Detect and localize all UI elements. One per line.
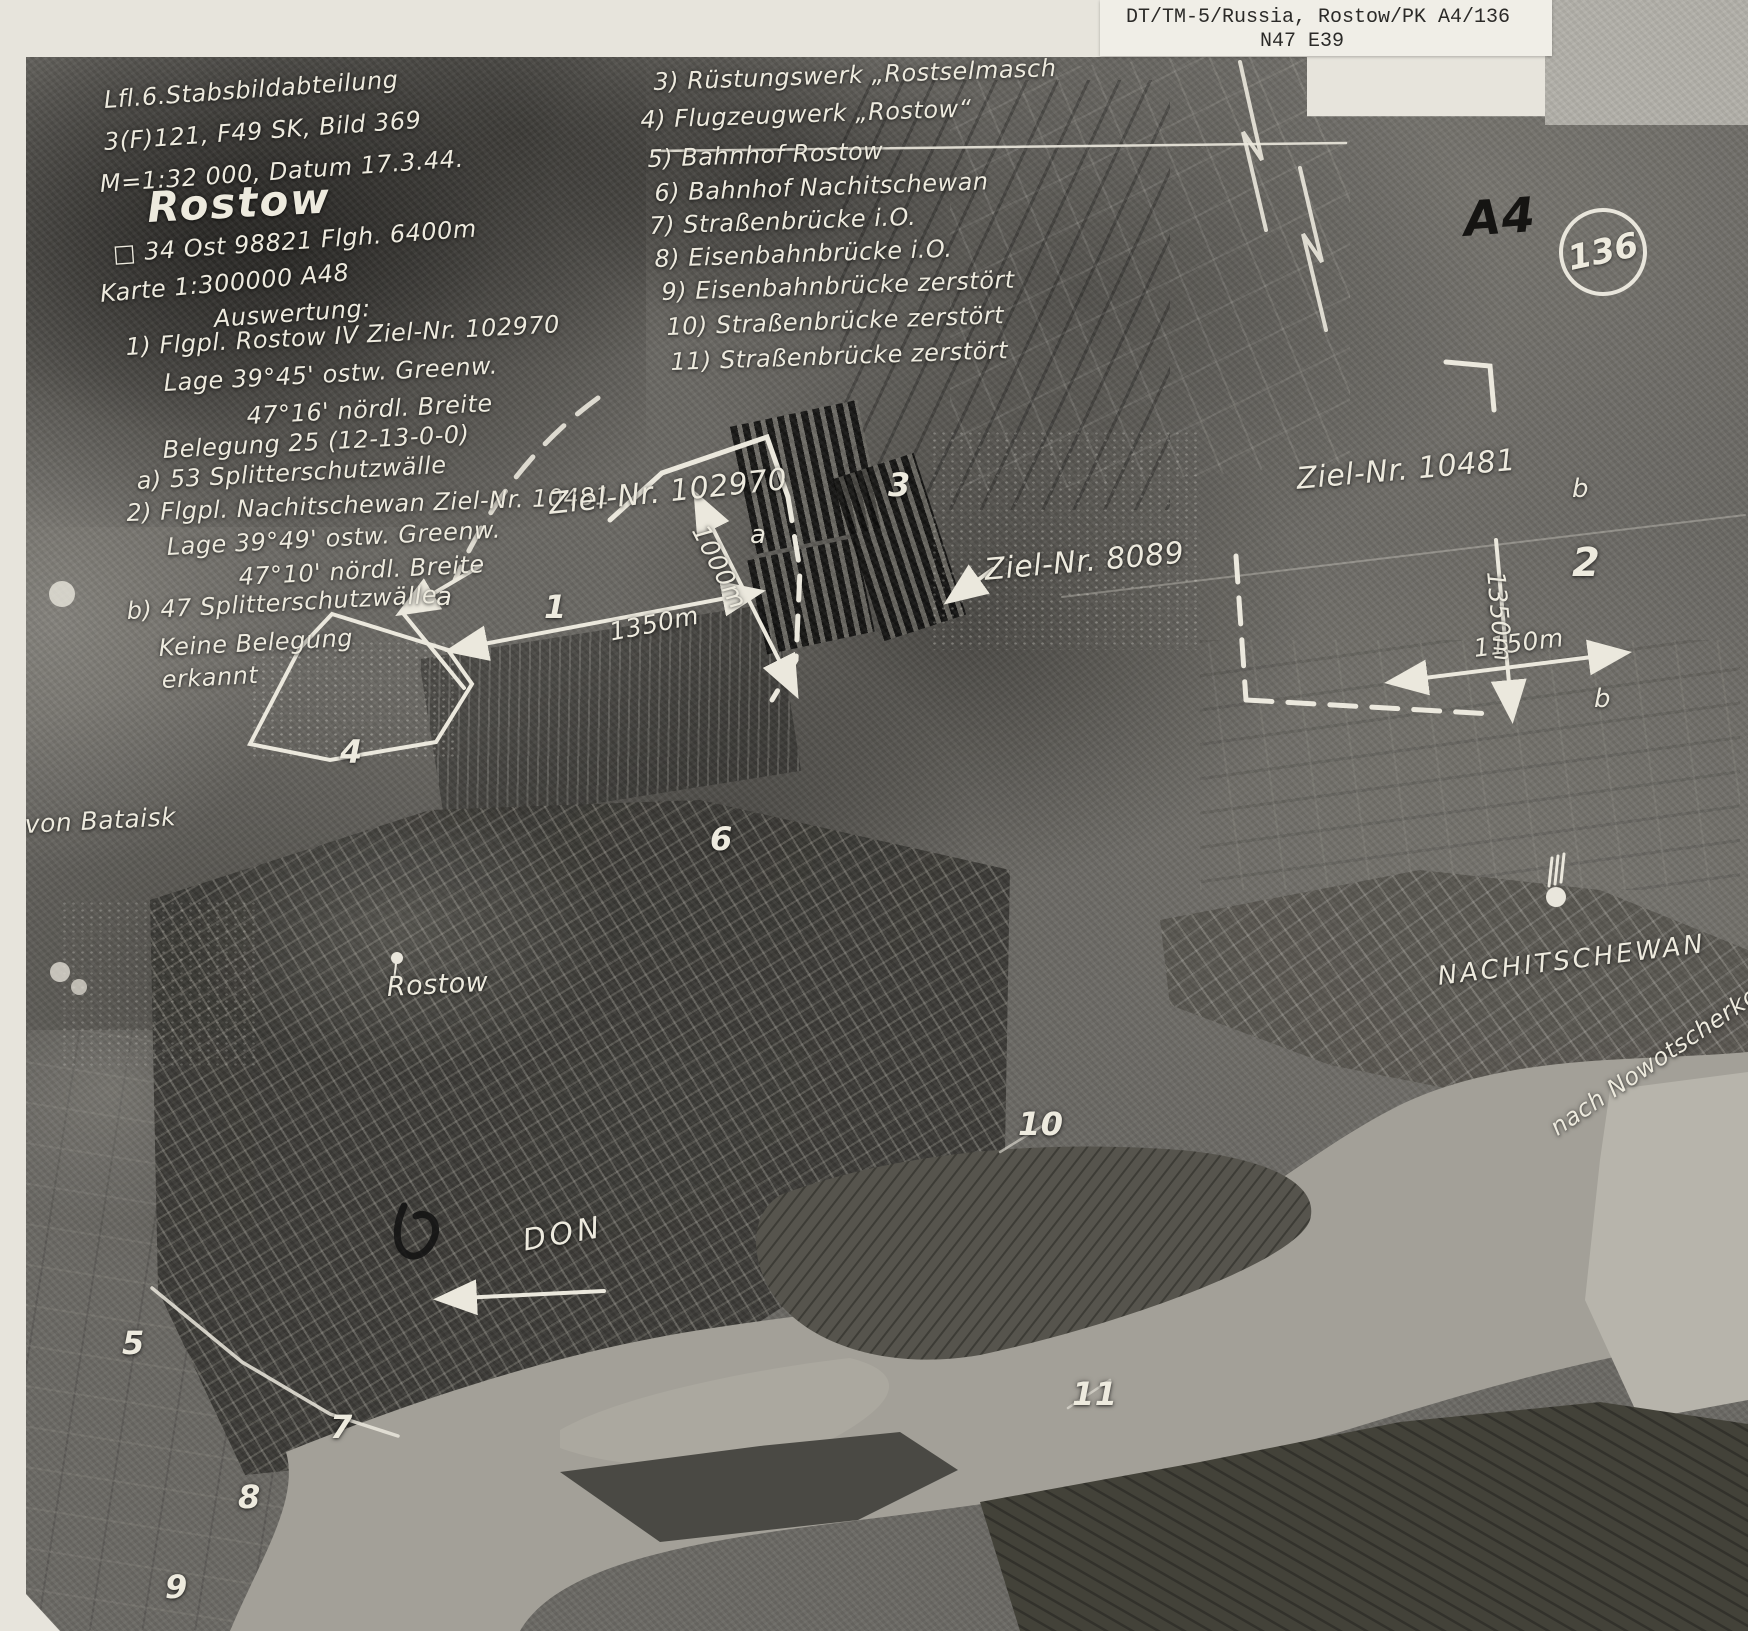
north-zigzag-icon	[1240, 62, 1266, 230]
pencil-label-a4: A4	[1462, 187, 1537, 248]
photo-blemish-2	[50, 962, 70, 982]
frame-number: 136	[1564, 225, 1642, 279]
recon-photo-page: { "header": { "line1": "DT/TM-5/Russia, …	[0, 0, 1748, 1631]
letter-marker-a2: a	[750, 520, 766, 550]
mast-lines-icon-2	[1555, 856, 1558, 884]
point-marker-8: 8	[238, 1478, 261, 1516]
point-marker-10: 10	[1018, 1105, 1064, 1143]
letter-marker-b2: b	[1594, 684, 1611, 714]
point-marker-11: 11	[1072, 1375, 1118, 1413]
railway-trace	[152, 1288, 398, 1436]
point-marker-4: 4	[340, 733, 363, 771]
overexposed-edge	[1307, 57, 1545, 117]
target-10481-corner	[1446, 362, 1494, 410]
black-pencil-scribble	[397, 1206, 435, 1256]
point-marker-7: 7	[330, 1408, 353, 1446]
target-10481-dashed-west	[1236, 556, 1246, 700]
point-marker-2: 2	[1572, 540, 1600, 586]
place-label-rostow: Rostow	[386, 967, 489, 1003]
north-zigzag-icon-2	[1300, 168, 1326, 330]
point-marker-5: 5	[122, 1324, 145, 1362]
photo-blemish-1	[49, 581, 75, 607]
archive-label-line1: DT/TM-5/Russia, Rostow/PK A4/136	[1126, 6, 1510, 29]
point-marker-9: 9	[165, 1568, 188, 1606]
letter-marker-a1: a	[436, 582, 452, 612]
scale-arrow-1350m	[452, 592, 758, 650]
target-boundary-dashed-east	[772, 497, 800, 700]
point-marker-1: 1	[544, 588, 567, 626]
aerial-photograph: Lfl.6.Stabsbildabteilung 3(F)121, F49 SK…	[0, 0, 1748, 1631]
lollipop-marker-icon	[1546, 887, 1566, 907]
archive-label-card: DT/TM-5/Russia, Rostow/PK A4/136 N47 E39	[1100, 0, 1552, 56]
point-marker-6: 6	[710, 820, 733, 858]
archive-label-line2: N47 E39	[1260, 30, 1344, 53]
don-flow-arrow-icon	[441, 1291, 604, 1299]
letter-marker-b1: b	[1572, 474, 1589, 504]
target-10481-dashed-south	[1246, 700, 1492, 714]
point-marker-3: 3	[888, 466, 911, 504]
photo-title: Rostow	[146, 173, 332, 232]
auswertung-line-11: erkannt	[161, 661, 259, 694]
photo-blemish-3	[71, 979, 87, 995]
rostow-dot-icon	[391, 952, 403, 964]
mast-lines-icon	[1549, 858, 1552, 886]
mast-lines-icon-3	[1561, 854, 1564, 882]
